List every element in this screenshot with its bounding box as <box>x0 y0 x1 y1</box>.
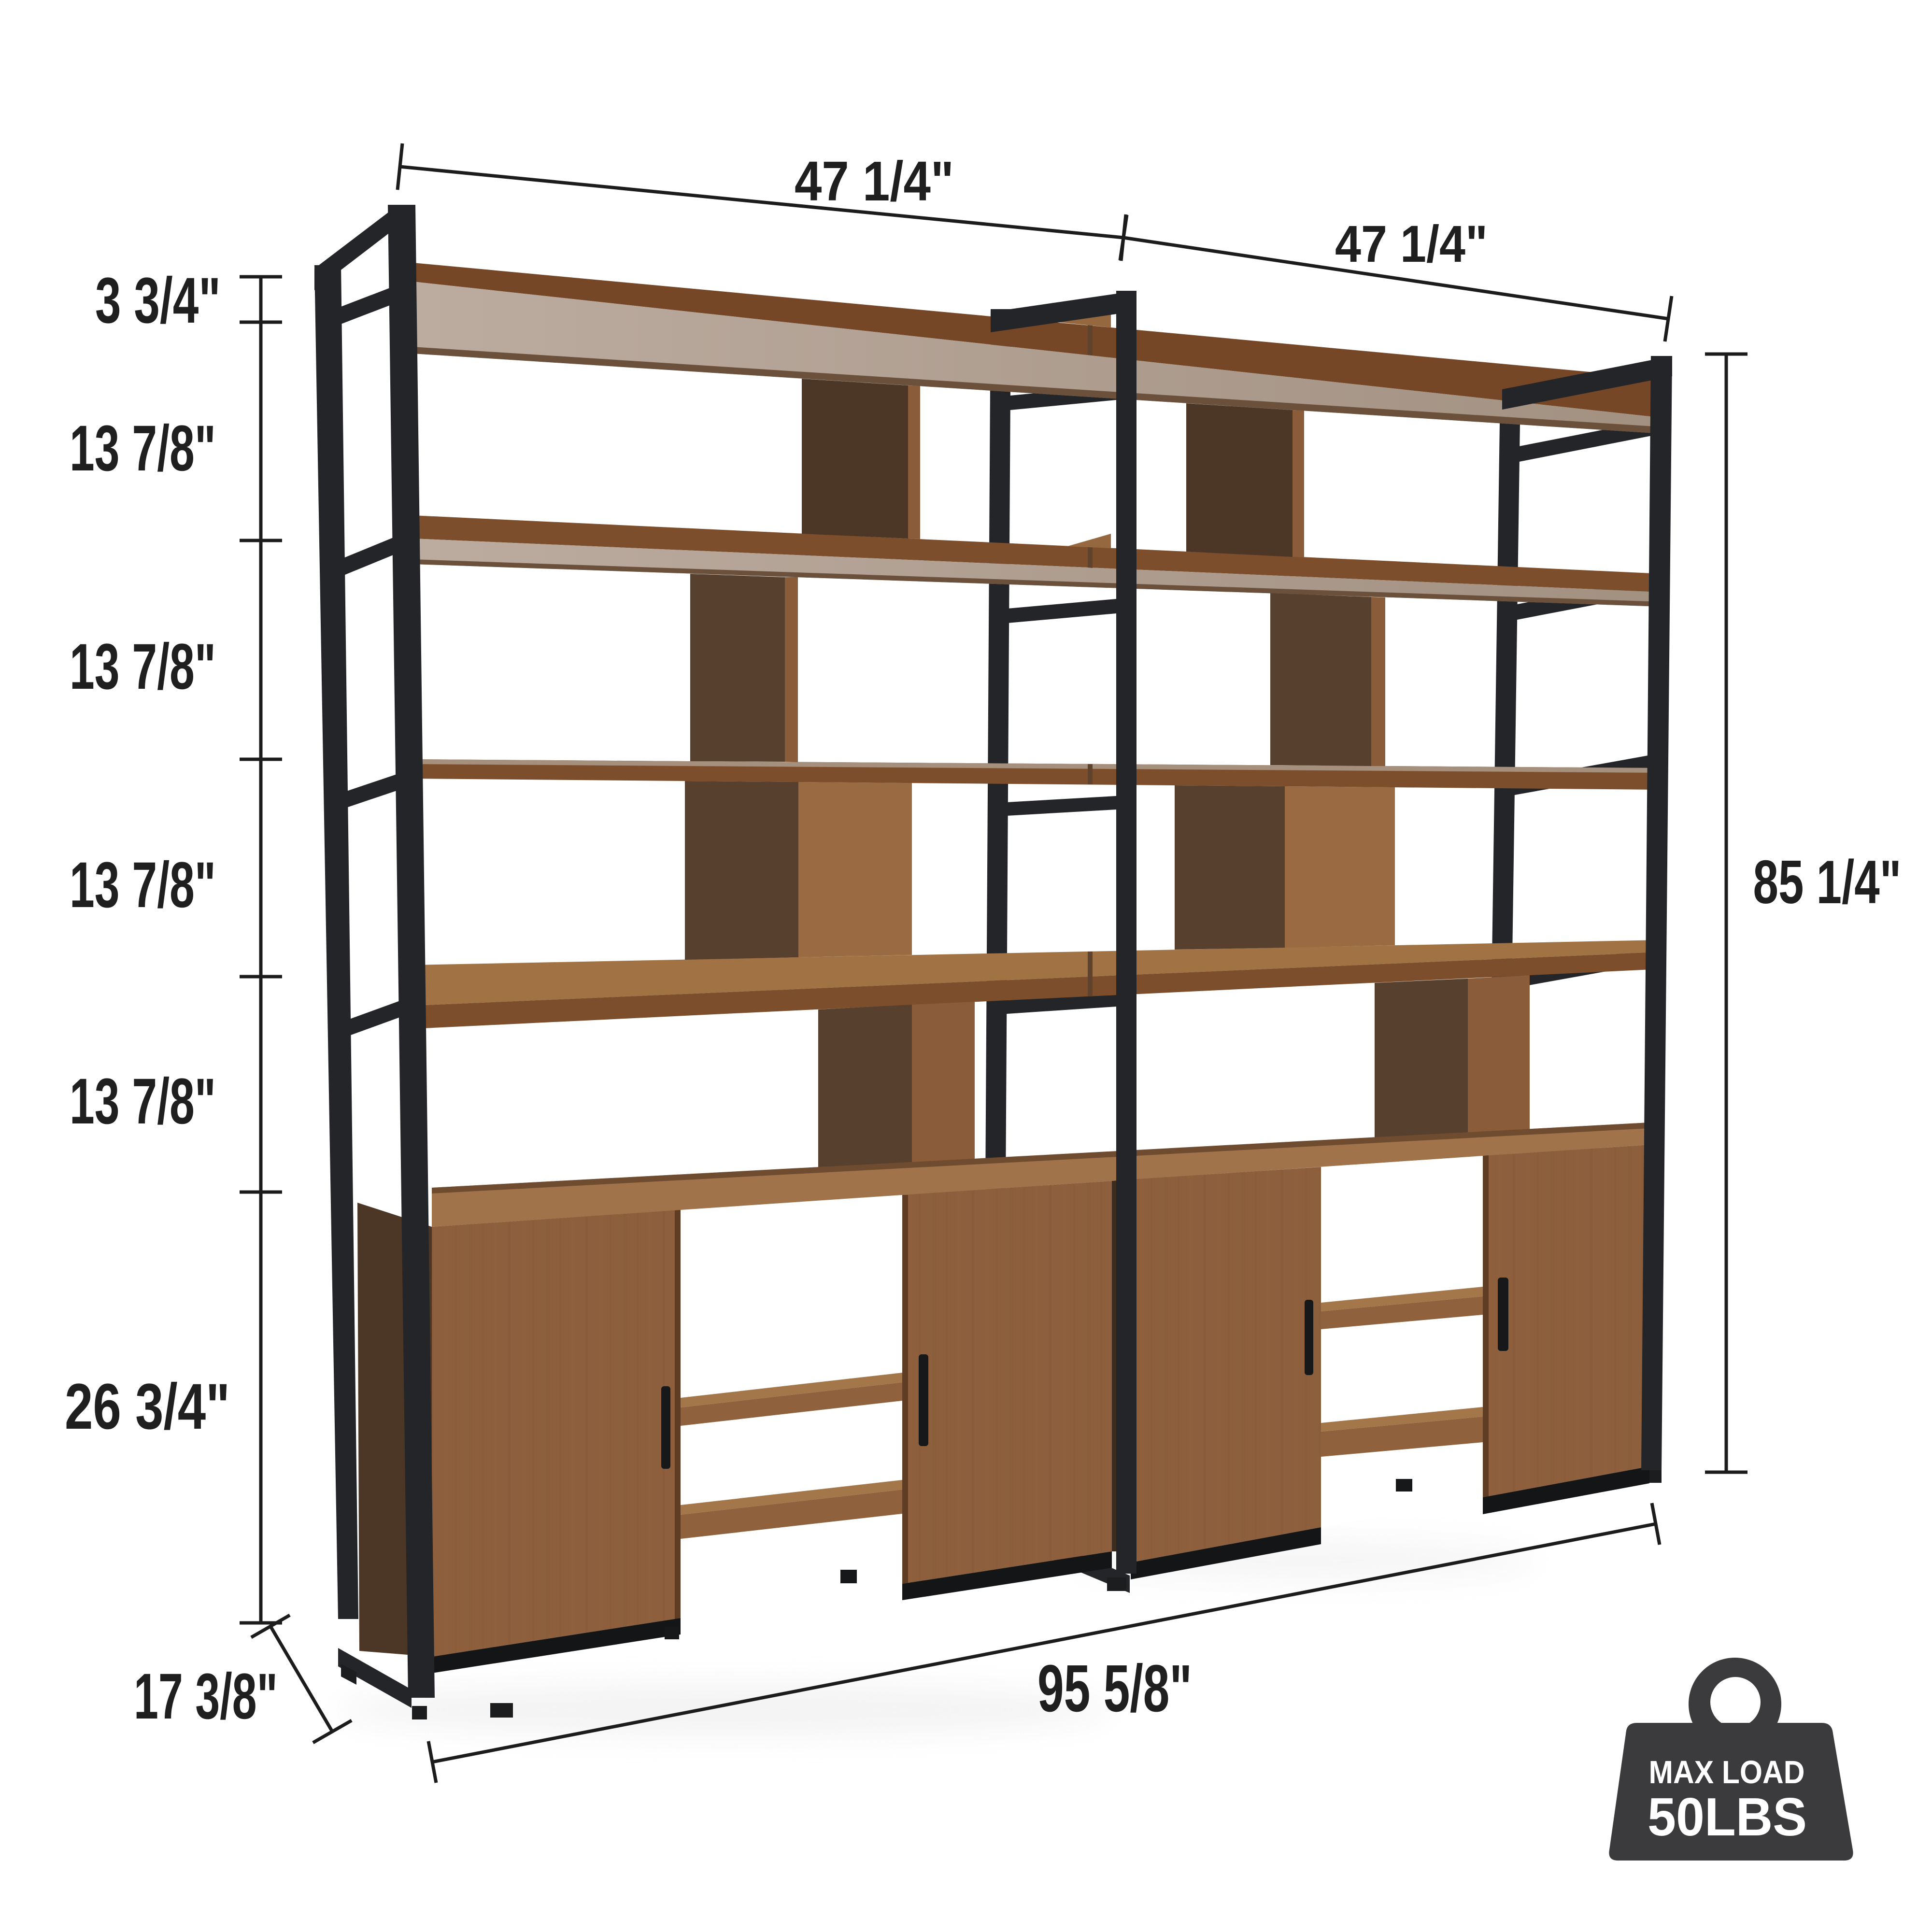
svg-text:47 1/4": 47 1/4" <box>1335 214 1488 273</box>
svg-text:MAX LOAD: MAX LOAD <box>1649 1754 1805 1790</box>
svg-text:13 7/8": 13 7/8" <box>70 849 216 921</box>
svg-text:85 1/4": 85 1/4" <box>1753 848 1902 916</box>
svg-text:47 1/4": 47 1/4" <box>795 150 954 213</box>
svg-text:17 3/8": 17 3/8" <box>134 1661 278 1733</box>
svg-text:95 5/8": 95 5/8" <box>1037 1651 1192 1726</box>
svg-text:26 3/4": 26 3/4" <box>65 1371 230 1443</box>
svg-text:13 7/8": 13 7/8" <box>70 631 216 703</box>
svg-text:50LBS: 50LBS <box>1648 1787 1807 1847</box>
svg-text:3 3/4": 3 3/4" <box>95 265 221 337</box>
svg-text:13 7/8": 13 7/8" <box>70 1065 216 1137</box>
svg-text:13 7/8": 13 7/8" <box>70 412 216 484</box>
